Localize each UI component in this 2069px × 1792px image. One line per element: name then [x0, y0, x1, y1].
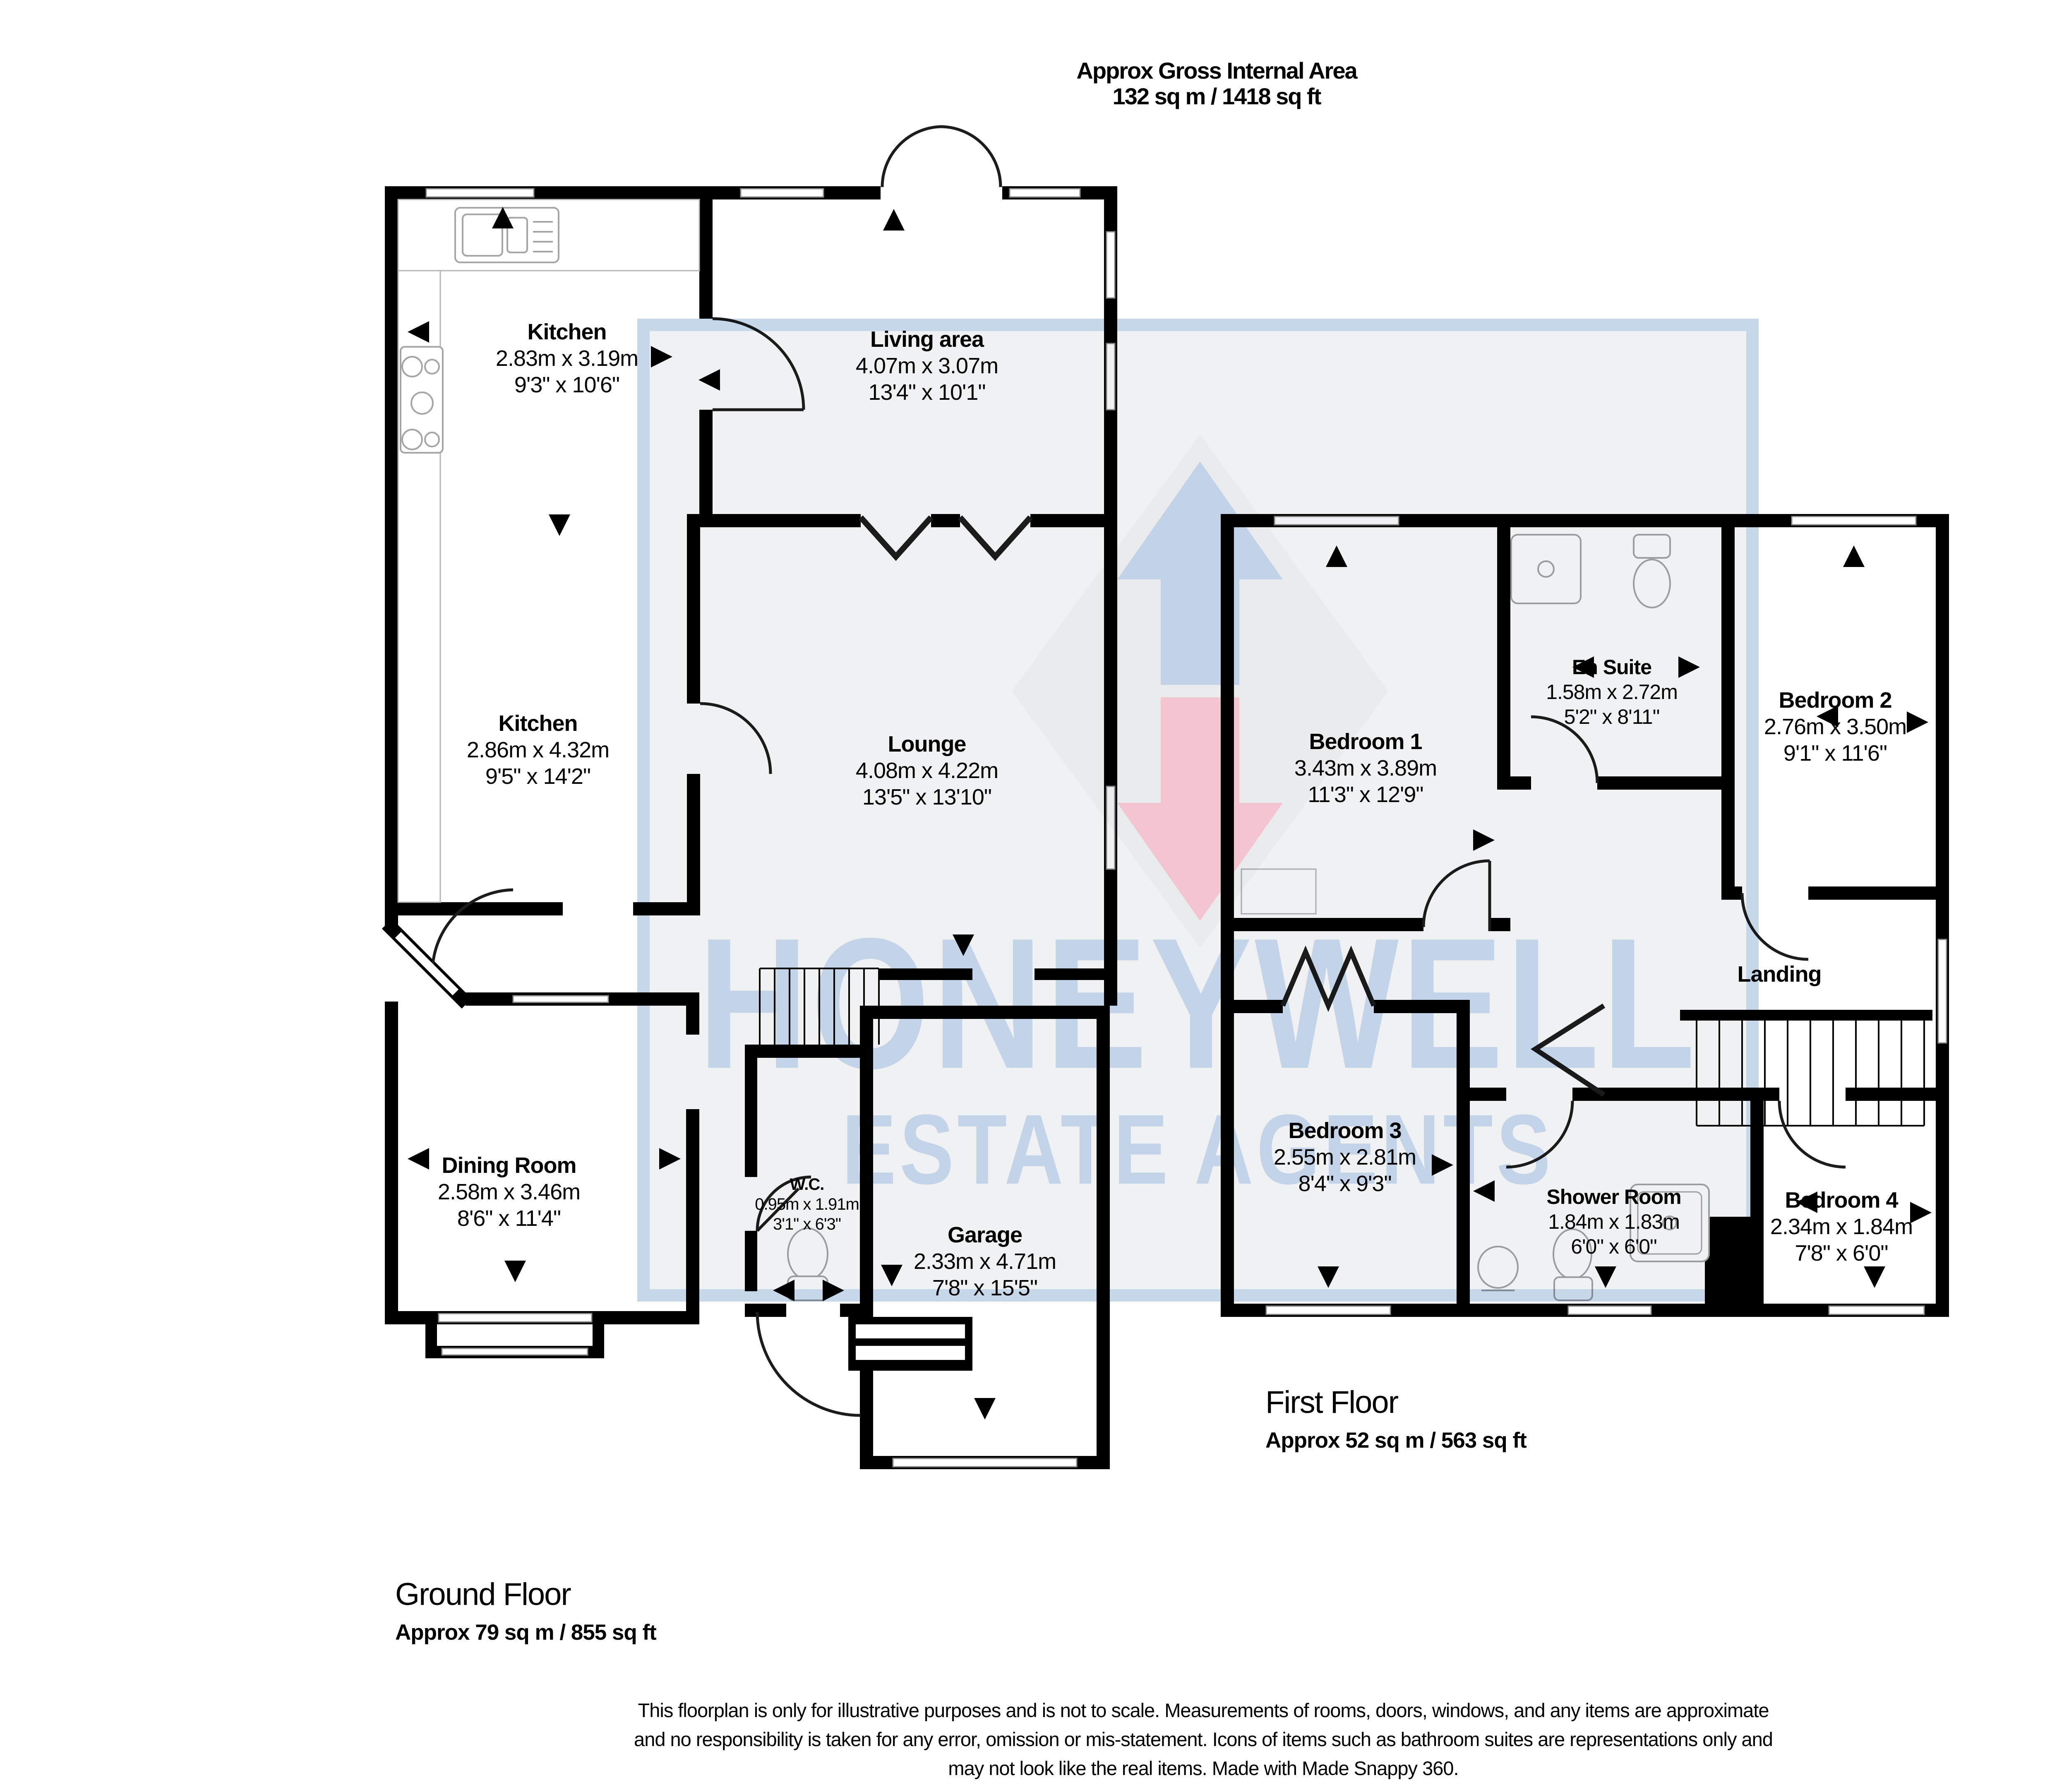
room-label-kitchen-side: Kitchen 2.86m x 4.32m 9'5" x 14'2" — [467, 710, 609, 790]
hob-icon — [401, 347, 443, 453]
floorplan-page: S N E W Kitchen 2.83m x 3.19m 9'3" x 10'… — [0, 0, 2069, 1792]
room-label-bedroom2: Bedroom 2 2.76m x 3.50m 9'1" x 11'6" — [1764, 687, 1906, 766]
room-label-kitchen-top: Kitchen 2.83m x 3.19m 9'3" x 10'6" — [496, 319, 638, 398]
watermark-name: HONEYWELL — [698, 899, 1698, 1107]
disclaimer-text: This floorplan is only for illustrative … — [634, 1696, 1773, 1783]
room-label-bedroom4: Bedroom 4 2.34m x 1.84m 7'8" x 6'0" — [1770, 1187, 1913, 1266]
first-floor-area: Approx 52 sq m / 563 sq ft — [1265, 1429, 1527, 1453]
ground-floor-area: Approx 79 sq m / 855 sq ft — [395, 1621, 656, 1645]
room-label-dining-room: Dining Room 2.58m x 3.46m 8'6" x 11'4" — [438, 1152, 580, 1232]
title-line2: 132 sq m / 1418 sq ft — [1076, 84, 1356, 109]
page-title: Approx Gross Internal Area 132 sq m / 14… — [1076, 58, 1356, 109]
watermark-tagline: ESTATE AGENTS — [842, 1093, 1554, 1205]
ground-floor-caption: Ground Floor — [395, 1578, 571, 1612]
title-line1: Approx Gross Internal Area — [1076, 58, 1356, 84]
first-floor-caption: First Floor — [1265, 1386, 1398, 1420]
estate-agent-watermark: HONEYWELL ESTATE AGENTS — [637, 319, 1759, 1302]
